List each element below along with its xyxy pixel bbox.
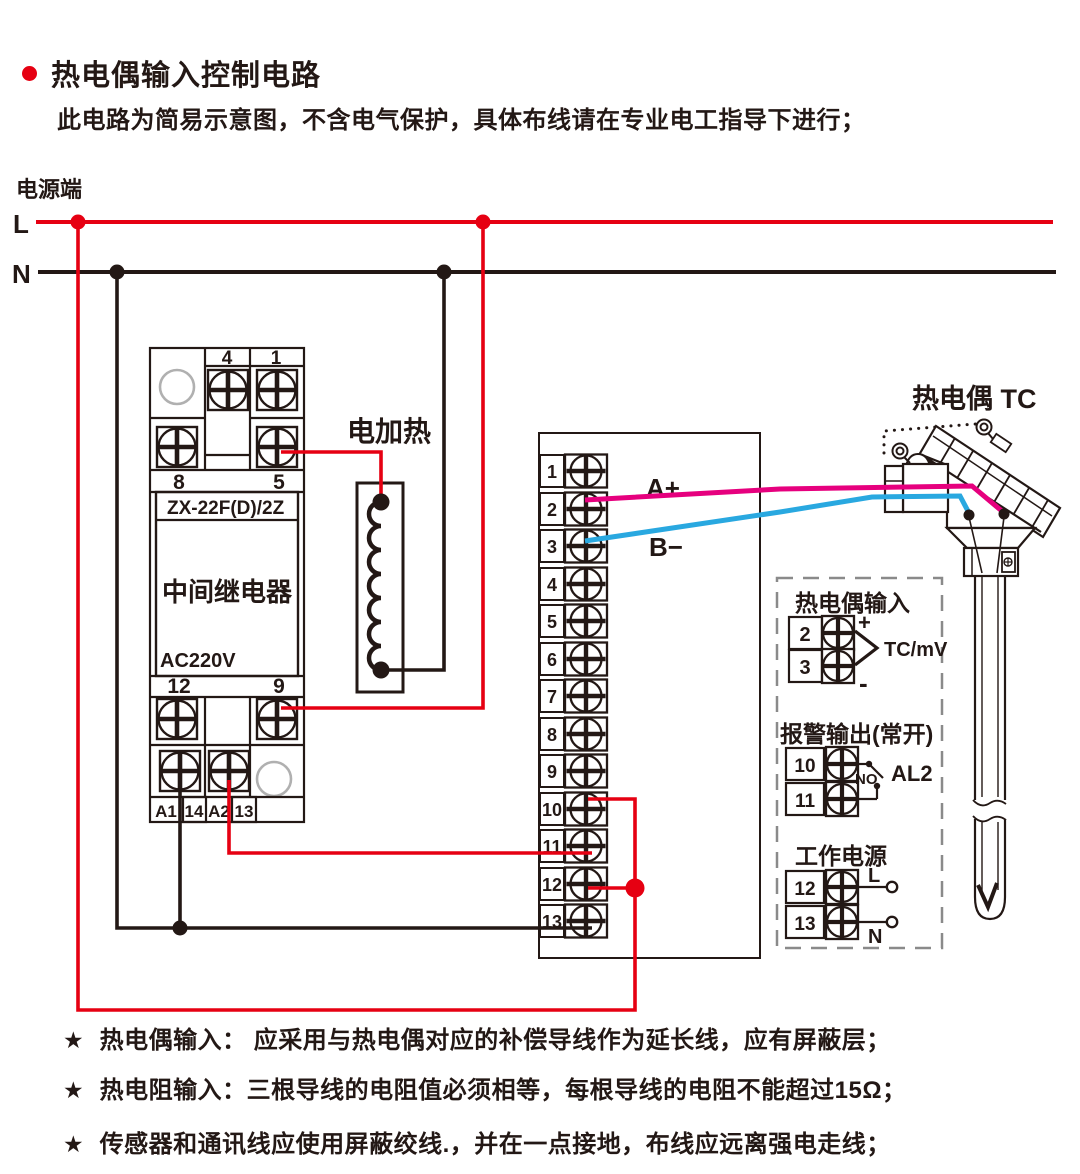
relay-screw-5 bbox=[257, 427, 297, 467]
tc-cap-clip bbox=[991, 434, 1012, 452]
relay-screw-12 bbox=[157, 699, 197, 739]
heater: 电加热 bbox=[347, 416, 431, 692]
tc-label: 热电偶 TC bbox=[912, 384, 1037, 414]
relay-screw-9 bbox=[257, 699, 297, 739]
inst-screw-7 bbox=[565, 680, 607, 713]
panel-t11: 11 bbox=[795, 791, 816, 812]
note-line: ★ 热电阻输入：三根导线的电阻值必须相等，每根导线的电阻不能超过15Ω； bbox=[63, 1070, 907, 1105]
contact-dot-top bbox=[866, 761, 872, 767]
panel-alarm-title: 报警输出(常开) bbox=[780, 721, 933, 747]
panel-screw-11 bbox=[826, 782, 858, 816]
inst-t6: 6 bbox=[547, 650, 557, 670]
relay-a2: A2 bbox=[208, 802, 230, 821]
line-n-label: N bbox=[12, 259, 31, 289]
relay-screw-4 bbox=[208, 370, 248, 410]
relay-screw-8 bbox=[157, 427, 197, 467]
panel-tc-bracket bbox=[855, 631, 877, 665]
inst-screw-12 bbox=[565, 868, 607, 901]
relay-screw-1 bbox=[257, 370, 297, 410]
inst-screw-13 bbox=[565, 905, 607, 938]
relay-a1: A1 bbox=[155, 802, 177, 821]
inst-screw-11 bbox=[565, 830, 607, 863]
relay-t1: 1 bbox=[271, 348, 282, 369]
panel-screw-12 bbox=[826, 870, 858, 904]
wiring-diagram: 电源端 L N bbox=[0, 0, 1080, 1020]
note-line: ★ 传感器和通讯线应使用屏蔽绞线.，并在一点接地，布线应远离强电走线； bbox=[63, 1124, 891, 1159]
panel-screw-10 bbox=[826, 747, 858, 781]
supply-l-terminal bbox=[887, 882, 897, 892]
relay-voltage: AC220V bbox=[160, 650, 236, 672]
line-l-label: L bbox=[13, 209, 29, 239]
inst-t8: 8 bbox=[547, 725, 557, 745]
inst-screw-9 bbox=[565, 755, 607, 788]
panel-t2: 2 bbox=[799, 624, 810, 646]
relay-name: 中间继电器 bbox=[162, 577, 293, 607]
inst-t10: 10 bbox=[542, 800, 562, 820]
panel-screw-2 bbox=[822, 616, 854, 650]
wire-b-label: B− bbox=[649, 532, 683, 562]
relay-t8: 8 bbox=[173, 471, 185, 494]
panel-t13: 13 bbox=[794, 914, 815, 935]
panel-tc-signal: TC/mV bbox=[884, 639, 948, 661]
panel-plus: + bbox=[858, 610, 871, 635]
panel-tc-title: 热电偶输入 bbox=[795, 590, 910, 616]
inst-screw-8 bbox=[565, 718, 607, 751]
tc-neck bbox=[947, 528, 1035, 548]
power-rails: 电源端 L N bbox=[12, 177, 1056, 289]
inst-screw-5 bbox=[565, 605, 607, 638]
star-icon: ★ bbox=[63, 1131, 84, 1158]
panel-minus: - bbox=[859, 668, 868, 698]
power-label: 电源端 bbox=[16, 177, 82, 202]
inst-t5: 5 bbox=[547, 612, 557, 632]
inst-t1: 1 bbox=[547, 462, 557, 482]
tc-sheath bbox=[973, 576, 1006, 919]
panel-t12: 12 bbox=[794, 879, 815, 900]
tc-tip-mark bbox=[978, 883, 997, 907]
relay-t12: 12 bbox=[167, 675, 190, 698]
relay-t5: 5 bbox=[273, 471, 285, 494]
panel-n-label: N bbox=[868, 926, 882, 948]
relay-t13: 13 bbox=[235, 802, 254, 821]
star-icon: ★ bbox=[63, 1027, 84, 1054]
inst-screw-4 bbox=[565, 568, 607, 601]
inst-t2: 2 bbox=[547, 500, 557, 520]
relay-model: ZX-22F(D)/2Z bbox=[167, 498, 285, 519]
inst-t12: 12 bbox=[542, 875, 562, 895]
star-icon: ★ bbox=[63, 1077, 84, 1104]
inst-t4: 4 bbox=[547, 575, 557, 595]
panel-no-label: NO bbox=[855, 771, 878, 788]
io-panel: 热电偶输入 2 3 + - TC/mV 报警输出(常开) 10 11 bbox=[777, 578, 948, 948]
inst-t7: 7 bbox=[547, 687, 557, 707]
inst-t9: 9 bbox=[547, 762, 557, 782]
page: 热电偶输入控制电路 此电路为简易示意图，不含电气保护，具体布线请在专业电工指导下… bbox=[0, 0, 1080, 1174]
instrument: 1 2 3 4 5 6 7 8 9 10 11 12 13 bbox=[539, 433, 760, 958]
panel-screw-3 bbox=[822, 649, 854, 683]
supply-n-terminal bbox=[887, 917, 897, 927]
inst-t3: 3 bbox=[547, 537, 557, 557]
panel-l-label: L bbox=[868, 865, 880, 887]
relay-t9: 9 bbox=[273, 675, 285, 698]
panel-screw-13 bbox=[826, 905, 858, 939]
panel-al2-label: AL2 bbox=[891, 761, 933, 786]
panel-t3: 3 bbox=[799, 657, 810, 679]
note-line: ★ 热电偶输入： 应采用与热电偶对应的补偿导线作为延长线，应有屏蔽层； bbox=[63, 1020, 891, 1055]
relay-t4: 4 bbox=[222, 348, 233, 369]
relay-t14: 14 bbox=[185, 802, 204, 821]
inst-screw-3 bbox=[565, 530, 607, 563]
panel-t10: 10 bbox=[794, 756, 815, 777]
inst-screw-1 bbox=[565, 455, 607, 488]
heater-label: 电加热 bbox=[347, 416, 431, 447]
inst-screw-6 bbox=[565, 643, 607, 676]
